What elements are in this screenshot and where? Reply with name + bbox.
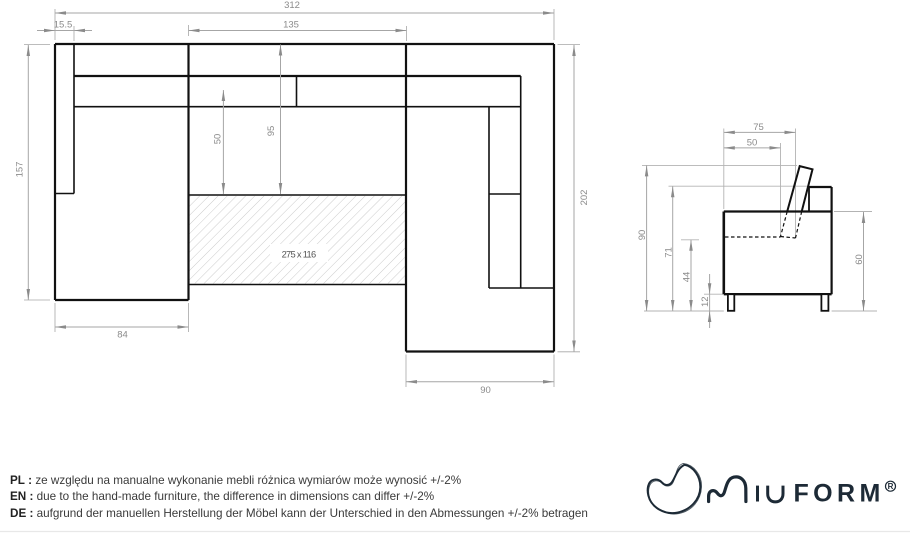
svg-text:50: 50 [747,138,758,149]
svg-text:60: 60 [854,254,865,265]
svg-text:15.5: 15.5 [54,20,73,31]
svg-text:44: 44 [682,272,693,283]
svg-text:R: R [888,482,894,491]
svg-text:95: 95 [266,126,277,137]
svg-text:12: 12 [700,296,711,307]
svg-text:75: 75 [753,122,764,133]
svg-text:202: 202 [579,190,590,206]
svg-text:312: 312 [284,0,300,11]
svg-text:50: 50 [213,134,224,145]
svg-text:135: 135 [283,20,299,31]
svg-text:FORM: FORM [794,480,885,508]
svg-text:71: 71 [664,247,675,258]
svg-text:90: 90 [637,230,648,241]
svg-text:157: 157 [15,162,26,178]
svg-text:84: 84 [117,330,128,341]
svg-text:275 x 116: 275 x 116 [282,250,316,260]
svg-text:90: 90 [480,385,491,396]
